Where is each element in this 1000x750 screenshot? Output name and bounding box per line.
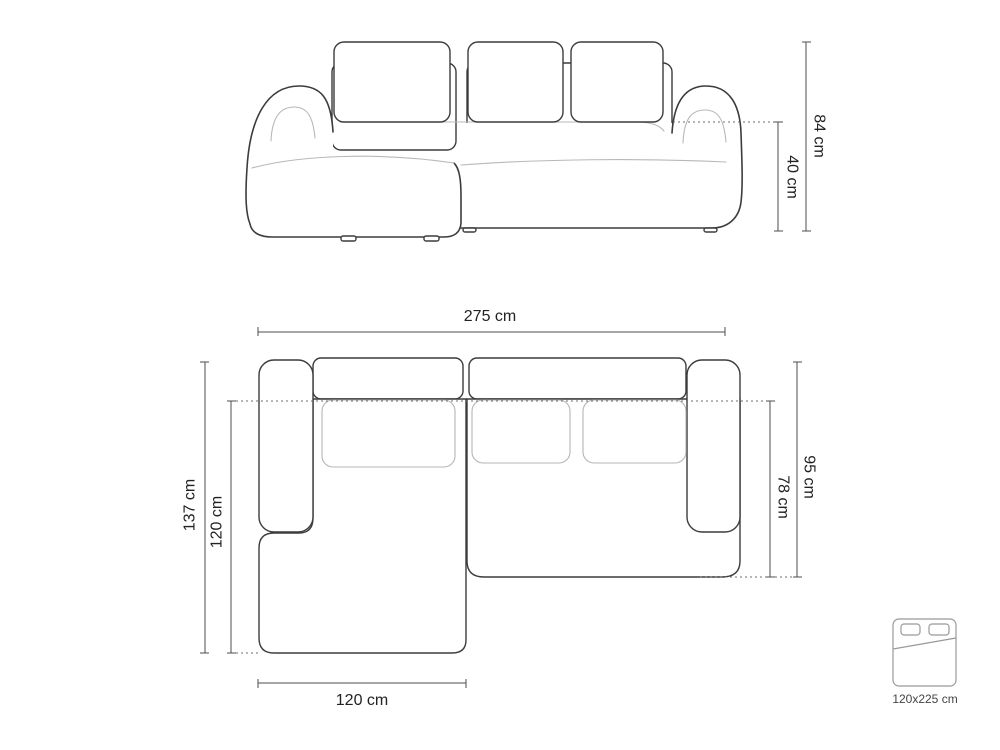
dim-line-84 [802,42,811,231]
top-armrest-left [259,360,313,532]
front-foot-1 [341,236,356,241]
bed-pillow-right-icon [929,624,949,635]
dim-label-137: 137 cm [182,479,199,531]
top-armrest-right [687,360,740,532]
dim-label-275: 275 cm [464,308,516,325]
front-back-cushion-1 [334,42,450,122]
top-back-cushion-3 [583,400,686,463]
top-back-cushion-1 [322,400,455,467]
dim-line-40 [774,122,783,231]
dim-line-120-bottom [258,679,466,688]
dim-line-120-left [227,401,236,653]
front-foot-3 [463,228,476,232]
front-foot-4 [704,228,717,232]
front-back-cushion-3 [571,42,663,122]
dim-label-40: 40 cm [784,155,801,199]
dim-label-84: 84 cm [811,114,828,158]
dim-label-120-left: 120 cm [209,496,226,548]
sleeping-area-legend: 120x225 cm [892,619,957,706]
top-backrest-right [469,358,686,399]
dim-label-78: 78 cm [775,475,792,519]
sofa-front-view [246,42,742,241]
sleeping-area-label: 120x225 cm [892,692,957,706]
dim-label-95: 95 cm [801,455,818,499]
bed-pillow-left-icon [901,624,920,635]
front-back-cushion-2 [468,42,563,122]
diagram-canvas: 84 cm 40 cm 275 cm 137 cm 120 cm 95 cm [0,0,1000,750]
sofa-dimensions-diagram: 84 cm 40 cm 275 cm 137 cm 120 cm 95 cm [0,0,1000,750]
front-foot-2 [424,236,439,241]
dim-line-275 [258,327,725,336]
sofa-top-view [259,358,740,653]
top-back-cushion-2 [472,400,570,463]
top-backrest-left [313,358,463,399]
dim-label-120-bottom: 120 cm [336,692,388,709]
dim-line-78 [766,401,775,577]
